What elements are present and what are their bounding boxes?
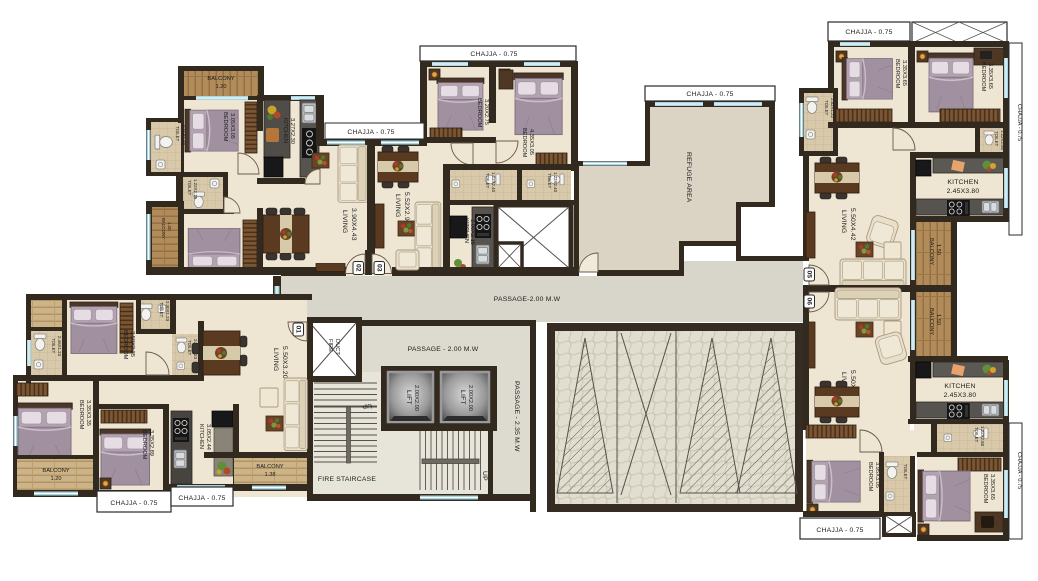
svg-text:BALCONY: BALCONY: [207, 76, 234, 82]
svg-text:TOILET: TOILET: [547, 173, 552, 189]
svg-text:3.35X3.65: 3.35X3.65: [901, 60, 907, 86]
svg-text:UP: UP: [362, 402, 372, 409]
svg-text:BALCONY: BALCONY: [42, 468, 69, 474]
svg-text:3.50X3.35: 3.50X3.35: [129, 331, 135, 357]
svg-text:BEDROOM: BEDROOM: [222, 112, 228, 142]
svg-text:REFUGE AREA: REFUGE AREA: [685, 152, 692, 203]
svg-text:PASSAGE - 2.35 M.W: PASSAGE - 2.35 M.W: [513, 381, 520, 452]
svg-text:3.05X2.44: 3.05X2.44: [205, 424, 211, 450]
svg-text:BEDROOM: BEDROOM: [894, 59, 900, 89]
svg-text:2.45X3.80: 2.45X3.80: [947, 188, 980, 195]
svg-text:5.50X4.42: 5.50X4.42: [849, 208, 856, 241]
svg-text:3.35X3.65: 3.35X3.65: [987, 63, 993, 89]
svg-text:BEDROOM: BEDROOM: [141, 430, 147, 460]
svg-text:3.05X3.05: 3.05X3.05: [229, 113, 235, 139]
svg-text:KITCHEN: KITCHEN: [944, 383, 975, 390]
svg-text:1.20: 1.20: [215, 84, 226, 90]
svg-text:BEDROOM: BEDROOM: [867, 462, 873, 492]
svg-text:TOILET: TOILET: [994, 131, 999, 147]
svg-text:PASSAGE-2.00 M.W: PASSAGE-2.00 M.W: [494, 296, 561, 303]
svg-text:1.50: 1.50: [935, 244, 941, 255]
svg-text:TOILET: TOILET: [824, 100, 829, 116]
svg-text:3.35X3.35: 3.35X3.35: [85, 400, 91, 426]
svg-text:BEDROOM: BEDROOM: [980, 62, 986, 92]
svg-text:KITCHEN: KITCHEN: [463, 218, 469, 243]
svg-text:3.35X3.65: 3.35X3.65: [989, 474, 995, 500]
svg-text:TOILET: TOILET: [159, 302, 164, 318]
svg-text:03: 03: [376, 264, 383, 272]
svg-text:02: 02: [355, 264, 362, 272]
svg-text:2.00X2.00: 2.00X2.00: [467, 385, 473, 411]
svg-text:BALCONY: BALCONY: [161, 218, 166, 239]
svg-text:2.52X1.22: 2.52X1.22: [830, 98, 835, 119]
svg-text:BEDROOM: BEDROOM: [78, 400, 84, 430]
svg-text:5.52X2.90: 5.52X2.90: [403, 192, 410, 225]
svg-text:2.46X1.23: 2.46X1.23: [57, 336, 62, 357]
svg-text:CHAJJA - 0.75: CHAJJA - 0.75: [470, 51, 517, 58]
svg-text:KITCHEN: KITCHEN: [282, 118, 288, 143]
svg-text:LIFT: LIFT: [459, 390, 466, 405]
svg-text:1.22X2.40: 1.22X2.40: [491, 172, 496, 193]
svg-text:1.20: 1.20: [167, 222, 172, 231]
svg-text:LIVING: LIVING: [272, 348, 279, 372]
svg-text:1.22X2.15: 1.22X2.15: [193, 179, 198, 200]
svg-text:LIVING: LIVING: [341, 210, 348, 234]
svg-text:CHAJJA - 0.75: CHAJJA - 0.75: [845, 29, 892, 36]
svg-text:DUCT: DUCT: [334, 339, 340, 355]
svg-text:TOILET: TOILET: [187, 180, 192, 196]
svg-text:3.90X4.43: 3.90X4.43: [350, 208, 357, 241]
svg-text:BEDROOM: BEDROOM: [122, 330, 128, 360]
svg-text:LIVING: LIVING: [394, 194, 401, 218]
svg-text:BALCONY: BALCONY: [928, 238, 934, 265]
svg-text:3.27X2.30: 3.27X2.30: [289, 118, 295, 144]
svg-text:TOILET: TOILET: [974, 427, 979, 443]
svg-text:BEDROOM: BEDROOM: [476, 98, 482, 128]
svg-text:4.35X3.05: 4.35X3.05: [528, 129, 534, 155]
svg-text:PASSAGE - 2.00 M.W: PASSAGE - 2.00 M.W: [408, 346, 479, 353]
svg-text:3.35X2.89: 3.35X2.89: [148, 430, 154, 456]
svg-text:TOILET: TOILET: [485, 173, 490, 189]
svg-text:CHAJJA - 0.75: CHAJJA - 0.75: [816, 527, 863, 534]
svg-text:2.00X2.00: 2.00X2.00: [413, 385, 419, 411]
svg-text:BEDROOM: BEDROOM: [982, 474, 988, 504]
svg-text:CHAJJA - 0.75: CHAJJA - 0.75: [1016, 104, 1022, 141]
svg-text:1.38: 1.38: [264, 472, 275, 478]
svg-text:LIVING: LIVING: [840, 210, 847, 234]
svg-text:CHAJJA - 0.75: CHAJJA - 0.75: [686, 91, 733, 98]
svg-text:5.50X3.20: 5.50X3.20: [281, 346, 288, 379]
svg-text:UP: UP: [481, 471, 488, 481]
svg-text:2.45X3.80: 2.45X3.80: [944, 392, 977, 399]
svg-text:FIRE STAIRCASE: FIRE STAIRCASE: [318, 476, 376, 483]
svg-text:KITCHEN: KITCHEN: [198, 424, 204, 449]
svg-text:CHAJJA - 0.75: CHAJJA - 0.75: [110, 500, 157, 507]
svg-text:TOILET: TOILET: [903, 464, 908, 480]
svg-text:1.20: 1.20: [50, 476, 61, 482]
svg-text:1.22X2.40: 1.22X2.40: [553, 172, 558, 193]
svg-text:BALCONY: BALCONY: [256, 464, 283, 470]
svg-text:LIFT: LIFT: [405, 390, 412, 405]
svg-text:3.20X2.75: 3.20X2.75: [483, 99, 489, 125]
svg-text:01: 01: [295, 326, 302, 334]
svg-text:BEDROOM: BEDROOM: [521, 128, 527, 158]
svg-text:05: 05: [806, 271, 813, 279]
svg-text:2.30X1.23: 2.30X1.23: [165, 301, 170, 322]
svg-text:KITCHEN: KITCHEN: [947, 179, 978, 186]
svg-text:FIRE: FIRE: [327, 339, 333, 352]
svg-text:CHAJJA - 0.75: CHAJJA - 0.75: [1016, 452, 1022, 489]
svg-text:06: 06: [806, 298, 813, 306]
svg-text:CHAJJA - 0.75: CHAJJA - 0.75: [178, 495, 225, 502]
svg-text:TOILET: TOILET: [51, 338, 56, 354]
svg-text:3.00X2.15: 3.00X2.15: [469, 219, 475, 245]
svg-text:BALCONY: BALCONY: [928, 308, 934, 335]
svg-text:1.50: 1.50: [935, 314, 941, 325]
svg-text:TOILET: TOILET: [175, 126, 180, 142]
svg-text:TOILET: TOILET: [187, 340, 192, 356]
svg-text:CHAJJA - 0.75: CHAJJA - 0.75: [347, 129, 394, 136]
svg-text:1.22X2.50: 1.22X2.50: [980, 426, 985, 447]
